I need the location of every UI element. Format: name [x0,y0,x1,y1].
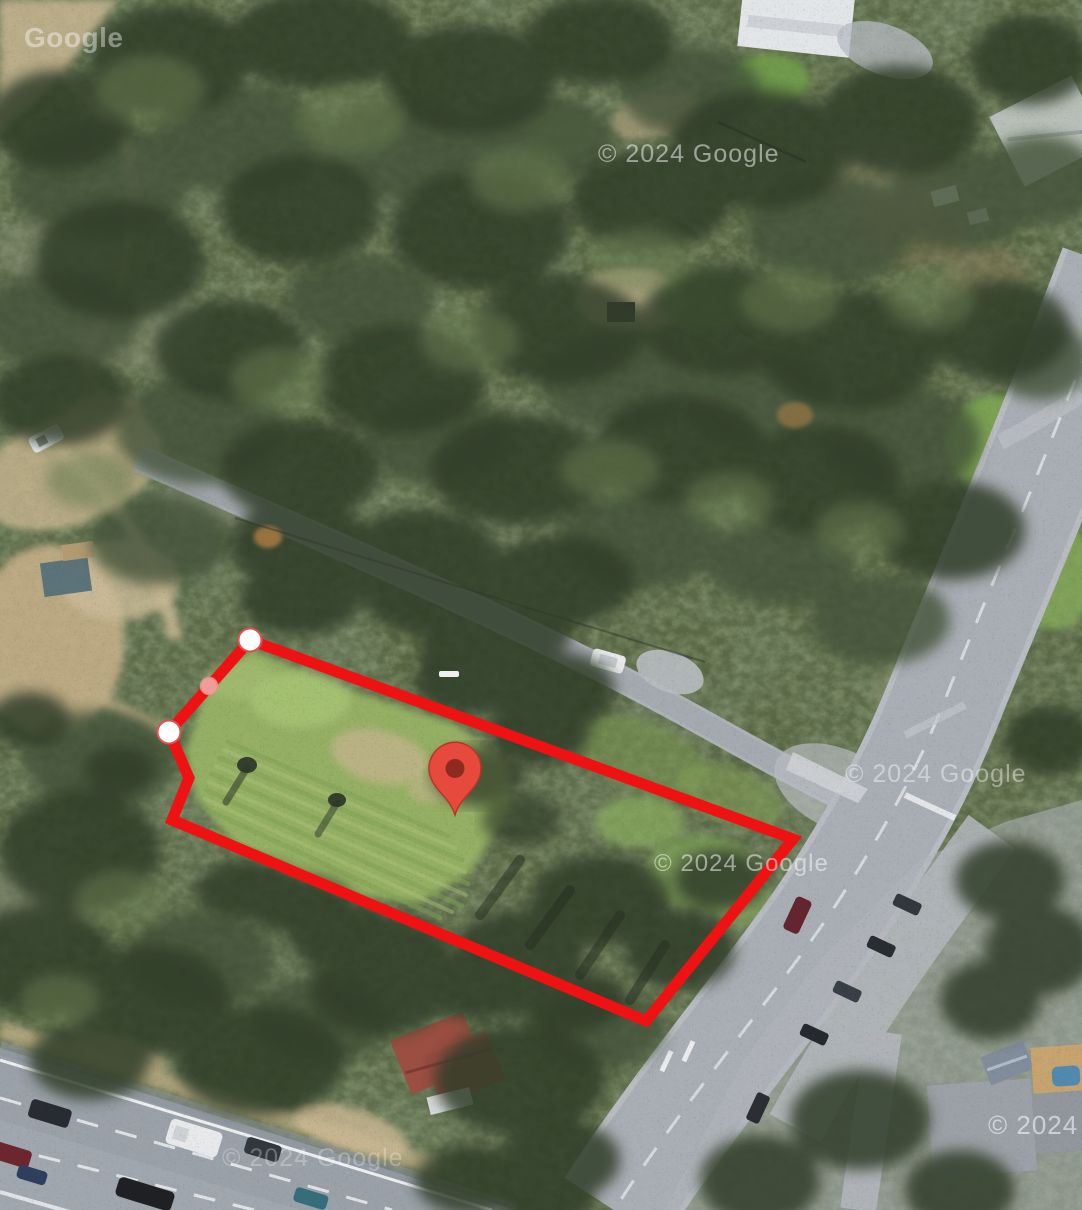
map-dash-marking [439,671,459,677]
midpoint-handle[interactable] [201,678,218,695]
haze [0,0,1082,1210]
vertex-handle[interactable] [239,629,262,652]
satellite-imagery [0,0,1082,1210]
map-viewport[interactable]: Google © 2024 Google © 2024 Google © 202… [0,0,1082,1210]
pin-inner-dot [446,759,465,778]
vertex-handle[interactable] [158,721,181,744]
